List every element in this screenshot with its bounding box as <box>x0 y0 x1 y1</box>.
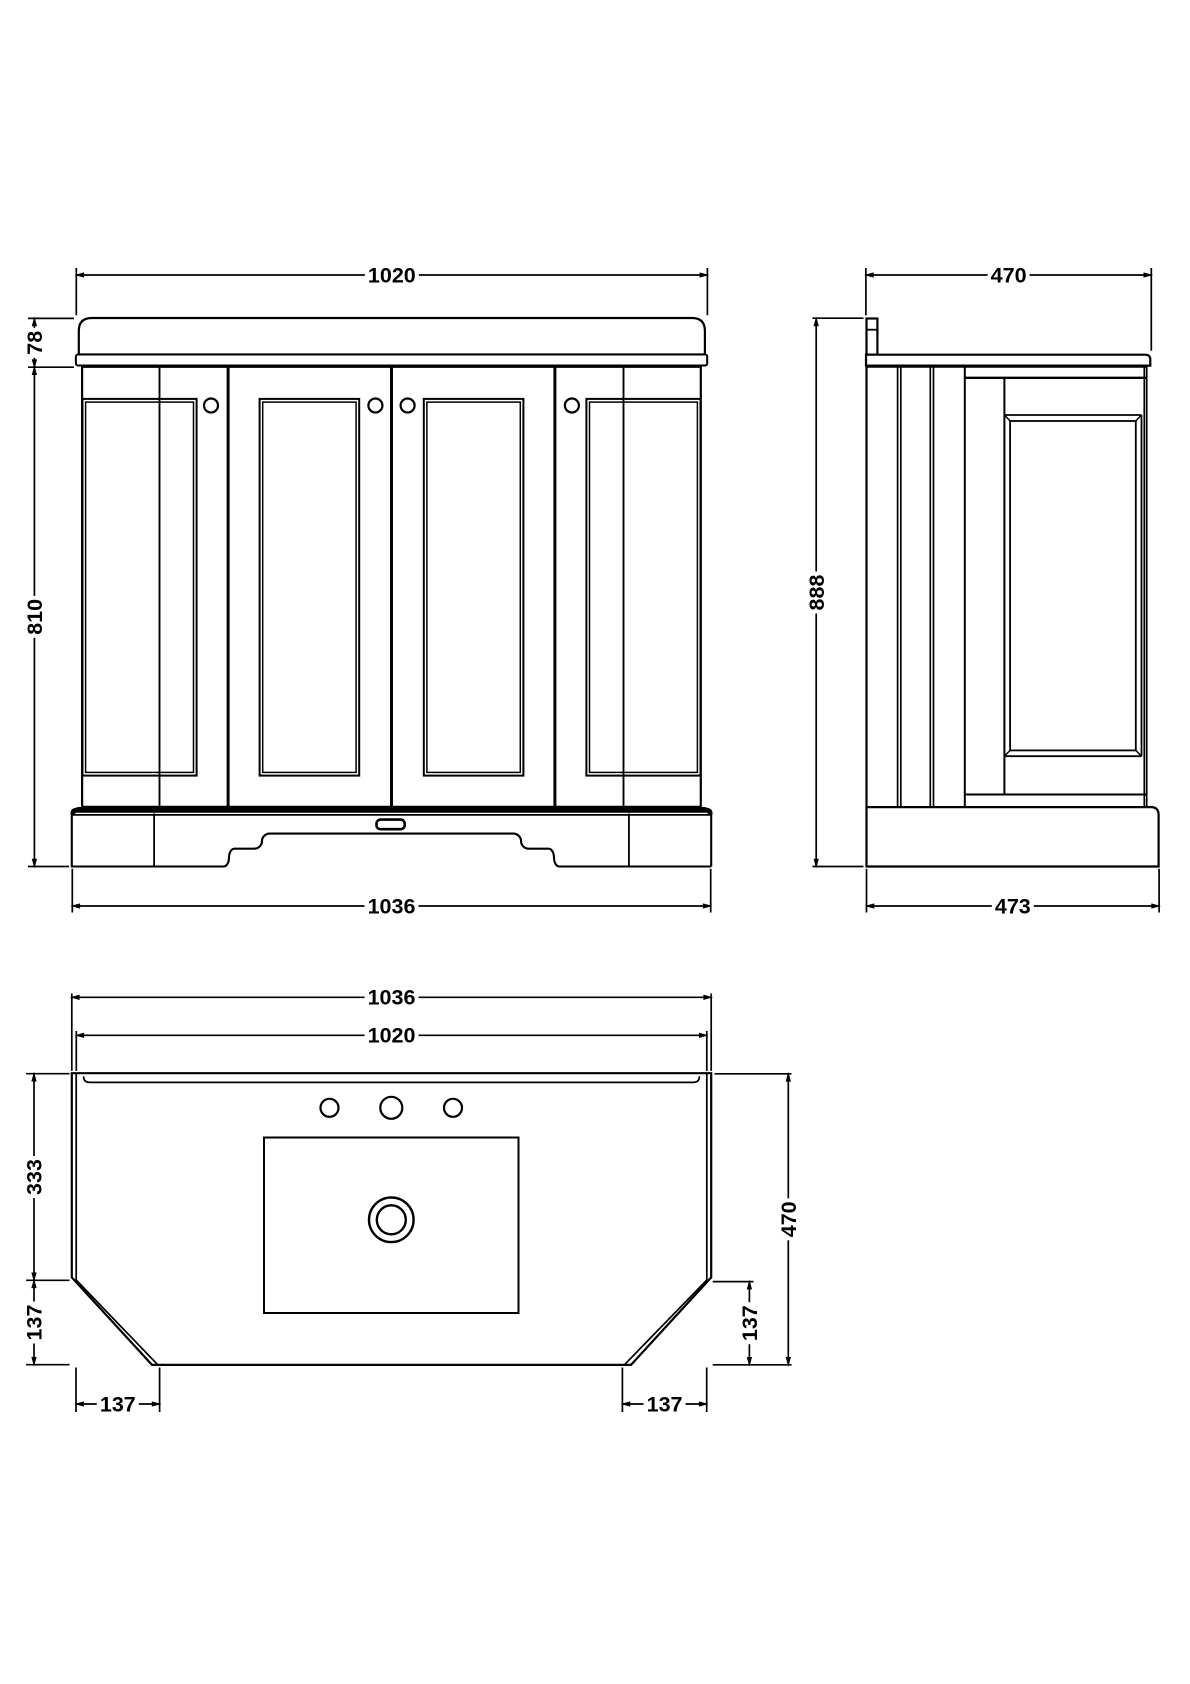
svg-text:137: 137 <box>647 1392 683 1416</box>
svg-text:137: 137 <box>100 1392 136 1416</box>
svg-text:137: 137 <box>23 1305 47 1341</box>
svg-text:137: 137 <box>738 1305 762 1341</box>
svg-text:810: 810 <box>23 599 47 635</box>
svg-text:78: 78 <box>23 331 47 355</box>
svg-text:333: 333 <box>23 1159 47 1195</box>
svg-text:1020: 1020 <box>368 263 416 287</box>
svg-text:473: 473 <box>995 894 1031 918</box>
svg-text:1036: 1036 <box>368 986 416 1010</box>
svg-text:470: 470 <box>991 263 1027 287</box>
svg-text:888: 888 <box>805 575 829 611</box>
svg-text:1020: 1020 <box>368 1024 416 1048</box>
svg-text:470: 470 <box>777 1201 801 1237</box>
svg-text:1036: 1036 <box>368 894 416 918</box>
